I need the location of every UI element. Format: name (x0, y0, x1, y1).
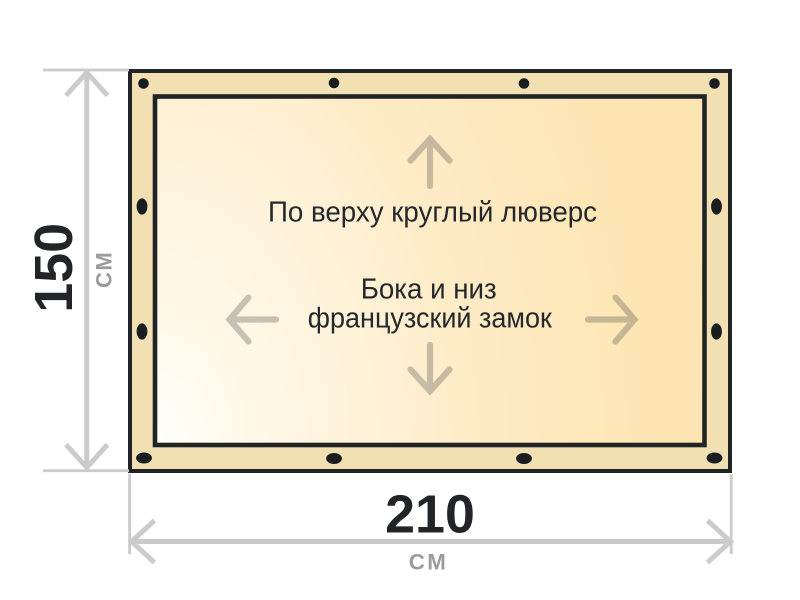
svg-text:Бока и низ: Бока и низ (361, 273, 497, 305)
svg-text:210: 210 (385, 485, 475, 545)
svg-text:По верху круглый люверс: По верху круглый люверс (268, 197, 597, 229)
svg-text:150: 150 (24, 223, 84, 313)
svg-text:СМ: СМ (92, 250, 117, 288)
svg-text:СМ: СМ (409, 550, 449, 575)
svg-text:французский замок: французский замок (308, 302, 552, 334)
